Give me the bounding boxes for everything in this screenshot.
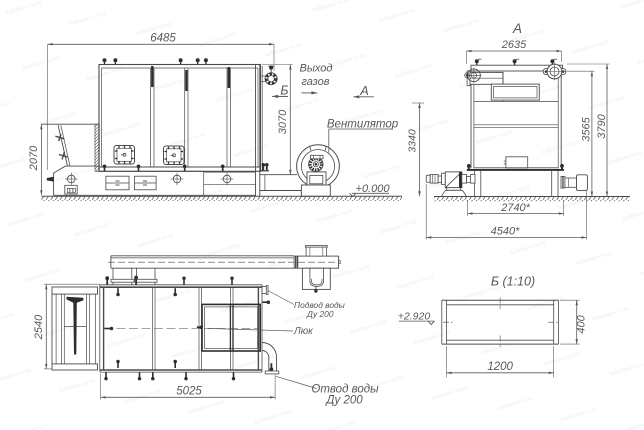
svg-text:3790: 3790 [596,113,608,138]
svg-text:Ду 200: Ду 200 [306,309,334,319]
svg-text:1200: 1200 [487,361,513,373]
svg-text:2740*: 2740* [500,202,530,214]
svg-text:Б: Б [280,84,288,98]
svg-text:Выход: Выход [299,63,332,75]
svg-text:газов: газов [301,76,329,88]
svg-text:А: А [359,84,368,98]
svg-text:2635: 2635 [501,39,527,51]
svg-text:2540: 2540 [33,314,45,340]
svg-text:3565: 3565 [581,116,593,141]
svg-text:400: 400 [576,314,588,333]
svg-text:6485: 6485 [150,33,176,45]
svg-text:4540*: 4540* [491,226,520,238]
svg-text:Вентилятор: Вентилятор [327,118,399,130]
svg-text:3340: 3340 [407,129,419,153]
svg-text:5025: 5025 [176,386,202,398]
svg-text:3070: 3070 [277,109,289,134]
svg-text:2070: 2070 [28,145,40,171]
svg-text:Ду 200: Ду 200 [324,394,363,406]
svg-text:Люк: Люк [293,326,313,337]
svg-text:Б (1:10): Б (1:10) [491,275,535,289]
svg-text:А: А [512,21,522,36]
